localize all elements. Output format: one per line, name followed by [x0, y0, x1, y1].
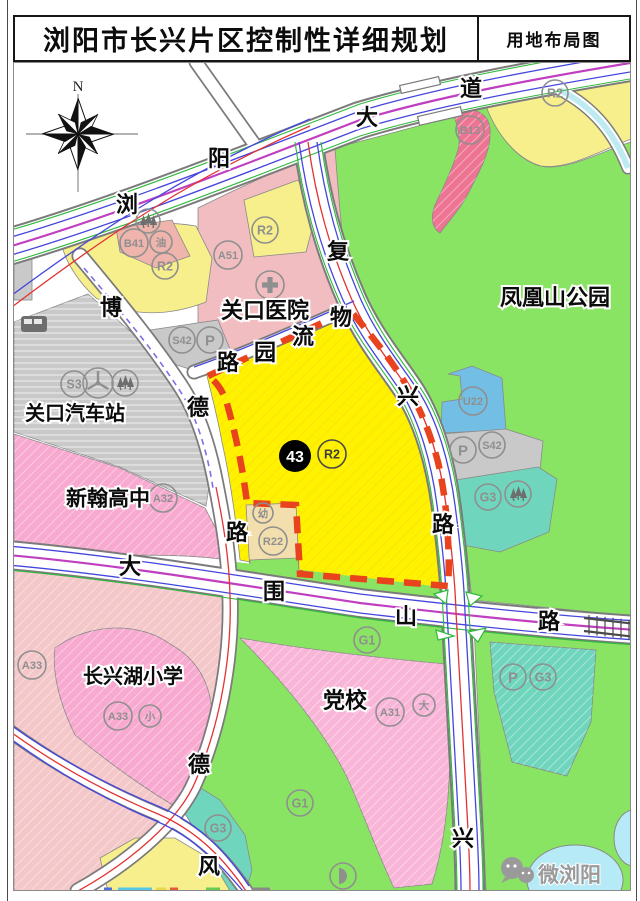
legend-fragment	[104, 888, 112, 892]
road-label: 兴	[452, 826, 474, 851]
svg-text:S3: S3	[66, 378, 81, 392]
svg-text:P: P	[205, 333, 215, 350]
road-label: 德	[187, 395, 209, 420]
planning-map-page: 浏阳市长兴片区控制性详细规划 用地布局图	[0, 0, 640, 901]
road-label: 风	[198, 854, 220, 879]
legend-fragment	[252, 888, 270, 892]
place-label: 长兴湖小学	[83, 664, 183, 688]
place-label: 关口医院	[221, 298, 309, 323]
place-label: 关口汽车站	[25, 401, 125, 425]
svg-text:P: P	[458, 443, 468, 460]
svg-text:A32: A32	[153, 493, 173, 505]
svg-text:大: 大	[419, 699, 430, 712]
road-label: 复	[326, 239, 350, 264]
svg-text:S42: S42	[482, 440, 502, 452]
bus-icon	[21, 316, 47, 332]
svg-text:R2: R2	[324, 448, 340, 462]
place-label: 党校	[323, 688, 368, 713]
legend-fragment	[156, 888, 166, 892]
svg-text:R22: R22	[263, 536, 283, 548]
svg-text:B41: B41	[124, 238, 144, 250]
svg-text:G1: G1	[359, 634, 376, 648]
svg-text:G3: G3	[480, 491, 497, 505]
svg-text:U22: U22	[463, 396, 483, 408]
svg-text:R2: R2	[547, 87, 563, 101]
legend-fragment	[170, 888, 178, 892]
svg-text:B13: B13	[460, 125, 480, 137]
road-label: 德	[188, 752, 210, 777]
road-label: 路	[432, 512, 455, 537]
svg-text:P: P	[508, 670, 518, 687]
road-label: 流	[292, 324, 314, 349]
svg-text:油: 油	[156, 236, 167, 249]
legend-fragment	[206, 888, 220, 892]
svg-text:A33: A33	[108, 711, 128, 723]
svg-text:43: 43	[286, 449, 304, 466]
road-label: 路	[217, 350, 240, 375]
road-label: 博	[100, 295, 122, 320]
svg-text:S42: S42	[172, 335, 192, 347]
svg-text:R2: R2	[157, 260, 173, 274]
watermark-text: 微浏阳	[537, 863, 601, 887]
place-label: 新翰高中	[66, 487, 150, 511]
road-label: 大	[356, 105, 378, 130]
road-label: 园	[254, 340, 276, 365]
road-label: 大	[119, 554, 141, 579]
road-label: 山	[395, 604, 417, 629]
plot-badge-layer: 43	[279, 440, 311, 472]
road-label: 路	[226, 520, 249, 545]
plot-43-badge: 43	[279, 440, 311, 472]
road-label: 浏	[116, 192, 138, 217]
road-label: 物	[330, 305, 352, 330]
svg-text:G3: G3	[535, 671, 552, 685]
svg-text:A31: A31	[380, 707, 400, 719]
road-label: 兴	[397, 384, 419, 409]
land-use-map: B41油R2R2A51R2B13S42PS3A32R2幼R22U22PS42G3…	[0, 0, 640, 901]
svg-text:G3: G3	[210, 822, 227, 836]
svg-text:G1: G1	[292, 797, 309, 811]
svg-text:A51: A51	[218, 250, 238, 262]
road-label: 围	[263, 579, 285, 604]
svg-text:A33: A33	[22, 660, 42, 672]
legend-fragment	[118, 888, 152, 892]
road-label: 路	[538, 609, 561, 634]
svg-text:幼: 幼	[258, 507, 269, 520]
svg-text:R2: R2	[257, 224, 273, 238]
compass-rose: N	[26, 79, 138, 192]
compass-north-label: N	[73, 79, 84, 95]
road-label: 道	[460, 76, 482, 101]
road-label: 阳	[208, 146, 230, 171]
place-label: 凤凰山公园	[500, 285, 610, 310]
svg-text:小: 小	[144, 710, 156, 723]
